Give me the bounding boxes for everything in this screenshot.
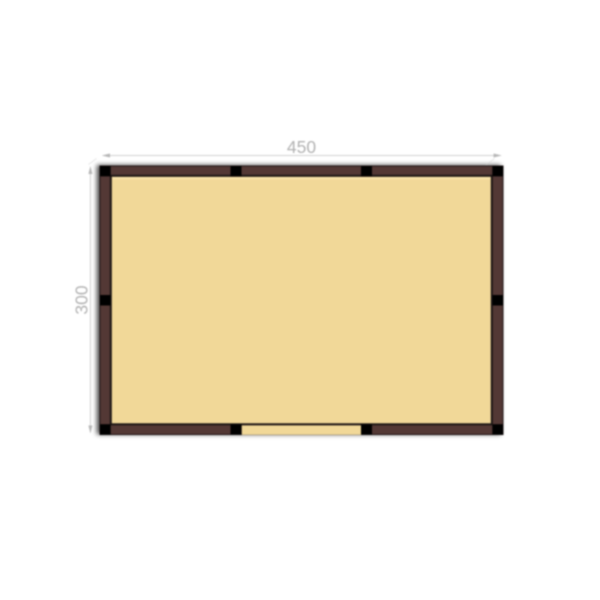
svg-text:450: 450 [287, 137, 316, 157]
svg-text:300: 300 [72, 285, 92, 314]
